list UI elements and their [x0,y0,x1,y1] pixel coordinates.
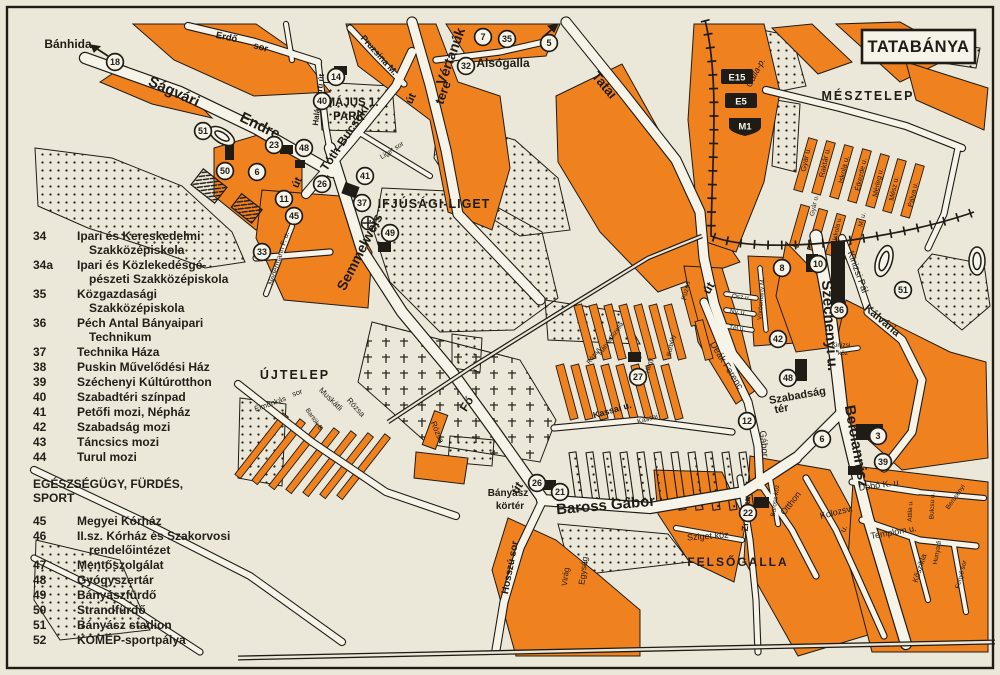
poi-marker: 49 [382,225,399,242]
poi-marker-number: 6 [819,434,824,444]
place-label: Bányász [488,488,529,499]
poi-marker: 6 [814,431,831,448]
poi-marker: 48 [296,140,313,157]
poi-marker-number: 45 [289,211,299,221]
poi-marker: 18 [107,54,124,71]
poi-marker: 32 [458,58,475,75]
poi-marker: 48 [780,370,797,387]
poi-marker-number: 51 [898,285,908,295]
legend-item: 35Közgazdasági Szakközépiskola [33,287,241,315]
map-title-box: TATABÁNYA [862,30,975,63]
poi-marker-number: 40 [317,96,327,106]
poi-marker-number: 8 [779,263,784,273]
street-label: sor [291,386,304,398]
legend-item: 47Mentőszolgálat [33,558,241,572]
poi-marker: 23 [266,137,283,154]
road-shield-E5: E5 [725,93,757,108]
poi-marker-number: 50 [220,166,230,176]
legend-item: 34Ipari és Kereskedelmi Szakközépiskola [33,229,241,257]
legend-section-header: EGÉSZSÉGÜGY, FÜRDÉS, SPORT [33,477,208,505]
poi-marker: 51 [195,123,212,140]
map-page: SágváriEndreErdősorHalászkerti útPruzsin… [0,0,1000,675]
legend-item: 36Péch Antal Bányaipari Technikum [33,316,241,344]
poi-marker: 41 [357,168,374,185]
place-label: körtér [496,501,524,512]
poi-marker: 14 [328,69,345,86]
poi-marker-number: 18 [110,57,120,67]
poi-marker-number: 33 [257,247,267,257]
poi-marker: 42 [770,331,787,348]
street-label: Kinizsi Pál [845,250,870,295]
legend-item: 40Szabadtéri színpad [33,390,241,404]
legend-item: 41Petőfi mozi, Népház [33,405,241,419]
poi-marker: 51 [895,282,912,299]
poi-marker: 26 [529,475,546,492]
poi-marker: 27 [630,369,647,386]
poi-marker-number: 27 [633,372,643,382]
poi-marker-number: 21 [555,487,565,497]
legend-item: 44Turul mozi [33,450,241,464]
poi-marker-number: 7 [480,32,485,42]
place-label: Bánhida [44,37,92,51]
road-shield-label: E15 [729,73,747,84]
street-label: Iskola u. [836,155,851,184]
poi-marker-number: 11 [279,194,289,204]
street-label: Kinizsi [832,342,851,349]
legend-item: 45Megyei Kórház [33,514,241,528]
place-label: PARK [333,111,365,123]
street-label: Attila u. [907,500,915,522]
poi-marker: 50 [217,163,234,180]
poi-marker-number: 36 [834,305,844,315]
legend-item: 39Széchenyi Kúltúrotthon [33,375,241,389]
poi-marker: 7 [475,29,492,46]
poi-marker-number: 37 [357,198,367,208]
legend-item: 52KOMÉP-sportpálya [33,633,241,647]
street-label: Bulcsu u. [929,492,937,519]
legend-item: 38Puskin Művelődési Ház [33,360,241,374]
poi-marker-number: 42 [773,334,783,344]
legend-item: 43Táncsics mozi [33,435,241,449]
poi-marker-number: 14 [331,72,341,82]
street-label: Rózsa [345,396,367,419]
poi-marker-number: 41 [360,171,370,181]
place-label: ÚJTELEP [260,367,330,382]
poi-marker-number: 51 [198,126,208,136]
poi-marker-number: 23 [269,140,279,150]
poi-marker: 40 [314,93,331,110]
poi-marker-number: 10 [813,259,823,269]
poi-marker: 37 [354,195,371,212]
road-shield-E15: E15 [721,69,753,84]
poi-marker: 12 [739,413,756,430]
legend-item: 37Technika Háza [33,345,241,359]
place-label: FELSŐGALLA [687,554,788,569]
poi-marker: 36 [831,302,848,319]
place-label: MÉSZTELEP [821,88,914,103]
poi-marker: 8 [774,260,791,277]
poi-marker-number: 6 [254,167,259,177]
poi-marker-number: 49 [385,228,395,238]
poi-marker-number: 12 [742,416,752,426]
place-label: tér [774,402,791,416]
legend-item: 49Bányászfürdő [33,588,241,602]
poi-marker-number: 5 [546,38,551,48]
poi-marker-number: 48 [299,143,309,153]
map-title: TATABÁNYA [868,37,970,56]
road-shield-label: E5 [735,97,747,108]
poi-marker-number: 39 [878,457,888,467]
poi-marker: 33 [254,244,271,261]
street-label: Mérleg u. [872,168,885,198]
street-label: Ősz u. [731,291,751,302]
poi-marker-number: 3 [875,431,880,441]
poi-marker: 45 [286,208,303,225]
legend-item: 34aIpari és Közlekedésgé-pészeti Szakköz… [33,258,241,286]
place-label: MÁJUS 1. [325,96,378,109]
legend-item: 48Gyógyszertár [33,573,241,587]
poi-marker: 22 [740,505,757,522]
street-label: köz [838,350,848,357]
poi-marker: 21 [552,484,569,501]
poi-marker-number: 32 [461,61,471,71]
street-label: Muskátli [317,386,345,413]
poi-marker: 6 [249,164,266,181]
legend-item: 42Szabadság mozi [33,420,241,434]
poi-marker-number: 48 [783,373,793,383]
poi-marker: 3 [870,428,887,445]
poi-marker-number: 22 [743,508,753,518]
legend-item: 46II.sz. Kórház és Szakorvosi rendelőint… [33,529,241,557]
poi-marker: 10 [810,256,827,273]
poi-marker: 35 [499,31,516,48]
legend-item: 51Bányász stadion [33,618,241,632]
poi-marker: 11 [276,191,293,208]
poi-marker: 5 [541,35,558,52]
poi-marker: 26 [314,176,331,193]
poi-marker: 39 [875,454,892,471]
street-label: M. u. [858,212,868,228]
poi-marker-number: 26 [317,179,327,189]
poi-marker-number: 26 [532,478,542,488]
legend-item: 50Strandfürdő [33,603,241,617]
legend: 34Ipari és Kereskedelmi Szakközépiskola … [33,229,241,648]
place-label: IFJÚSÁGI-LIGET [378,196,491,211]
place-label: Alsógalla [476,56,530,70]
poi-marker-number: 35 [502,34,512,44]
road-shield-label: M1 [738,122,752,133]
